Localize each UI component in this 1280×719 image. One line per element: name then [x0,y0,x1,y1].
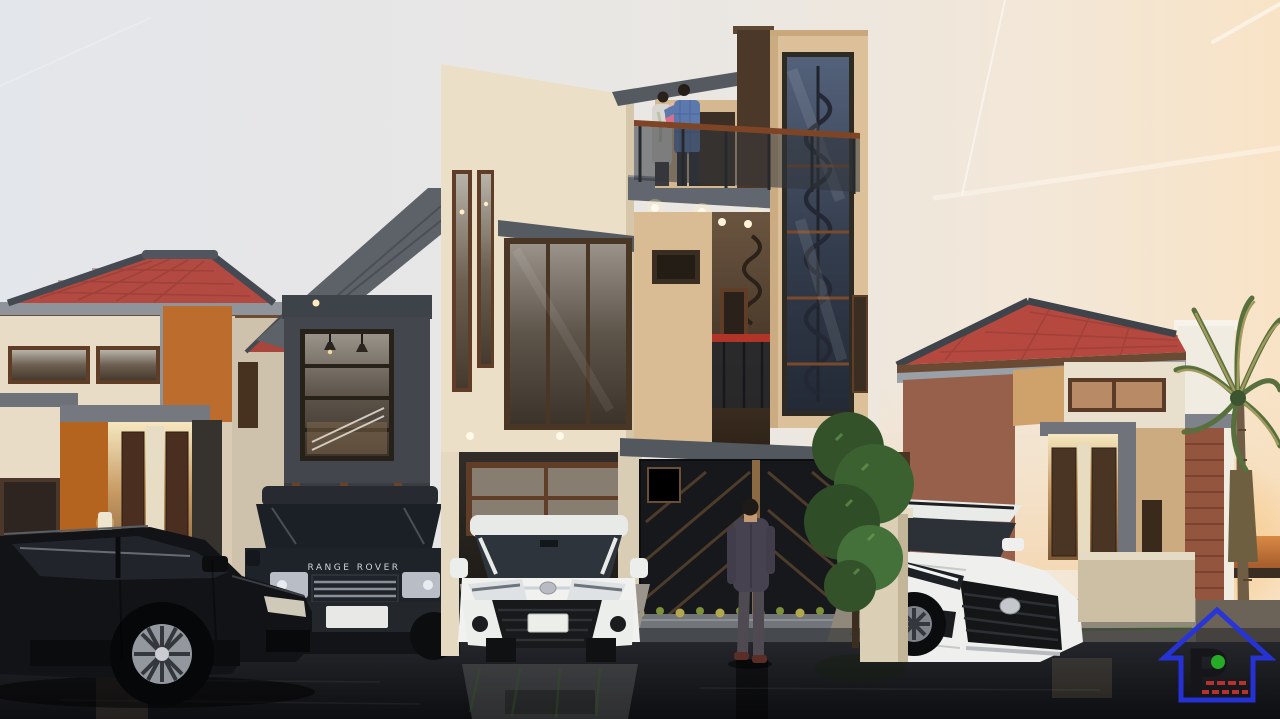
carport-downlight [466,432,474,440]
second-floor-tan-wall [634,212,712,452]
entry-light-reflection-right [1052,658,1112,698]
vent-window [657,255,695,279]
slot-window-glass [1072,382,1162,408]
hood-badge: RANGE ROVER [307,563,400,573]
white-minivan [450,515,648,662]
logo-letter: P [1185,637,1229,707]
bumper-vent [266,630,310,652]
entry-door-right [1092,448,1116,556]
canopy-downlight [313,300,320,307]
license-plate [528,614,568,632]
headlight-right [402,572,440,598]
bay-downlight-2 [744,220,752,228]
arm-right [766,526,775,574]
mirror-right [630,558,648,578]
pendant-glow [328,350,332,354]
tan-panel [1013,366,1066,426]
side-slot-window [238,362,258,428]
leg-right [753,588,764,658]
slot-window-glass-2 [100,350,156,380]
entry-door-left [1052,448,1076,556]
bay-window [724,292,744,334]
red-rail [712,334,770,342]
vertical-slot-glass [456,174,468,388]
entry-divider [1078,444,1090,558]
slot-light [460,210,465,215]
mirror-left [246,550,260,566]
head [742,499,759,516]
slot-window-glass [12,350,86,380]
rearview-mirror [540,540,558,547]
man-head [678,84,690,96]
tree-foliage-5 [824,560,876,612]
mirror [1002,538,1024,551]
mirror-left [450,558,468,578]
architectural-render-image: RANGE ROVER [0,0,1280,719]
logo-green-dot [1211,655,1225,669]
shoe-right [752,655,767,663]
palm-crown [1230,390,1246,406]
low-wall-body [1078,560,1195,622]
roof [470,515,628,537]
wheel-right [586,638,616,662]
toyota-emblem [1000,598,1020,614]
roof [262,486,438,506]
orange-accent-panel [163,306,232,422]
render-canvas: RANGE ROVER [0,0,1280,719]
tower-side-slot [853,296,867,392]
fog-light-right [610,616,626,632]
gate-window [648,468,680,502]
mirror [202,556,228,572]
carport-pillar [441,452,459,656]
shoe-left [734,652,749,660]
entry-column [1118,425,1136,565]
slot-light-2 [484,202,488,206]
arm-left [727,526,736,584]
tower-parapet [770,30,868,36]
front-low-wall [1078,552,1195,622]
wheel-left [486,638,516,662]
fog-light-left [472,616,488,632]
tower-edge-shade [770,30,778,428]
fascia [0,302,282,317]
headlight-lens-2 [423,580,433,590]
license-plate [326,606,388,628]
entry-frame-top [60,405,210,422]
carport-downlight-2 [556,432,564,440]
pillar-shade [898,514,908,662]
window-canopy [282,295,432,319]
leg-left [737,588,750,655]
ridge-top [142,250,218,259]
toyota-emblem [540,582,556,594]
bay-downlight [718,218,726,226]
woman-head [658,92,669,103]
minivan-grille-reflection [505,690,595,714]
annex-slab [0,393,78,407]
hub-cap [155,647,169,661]
